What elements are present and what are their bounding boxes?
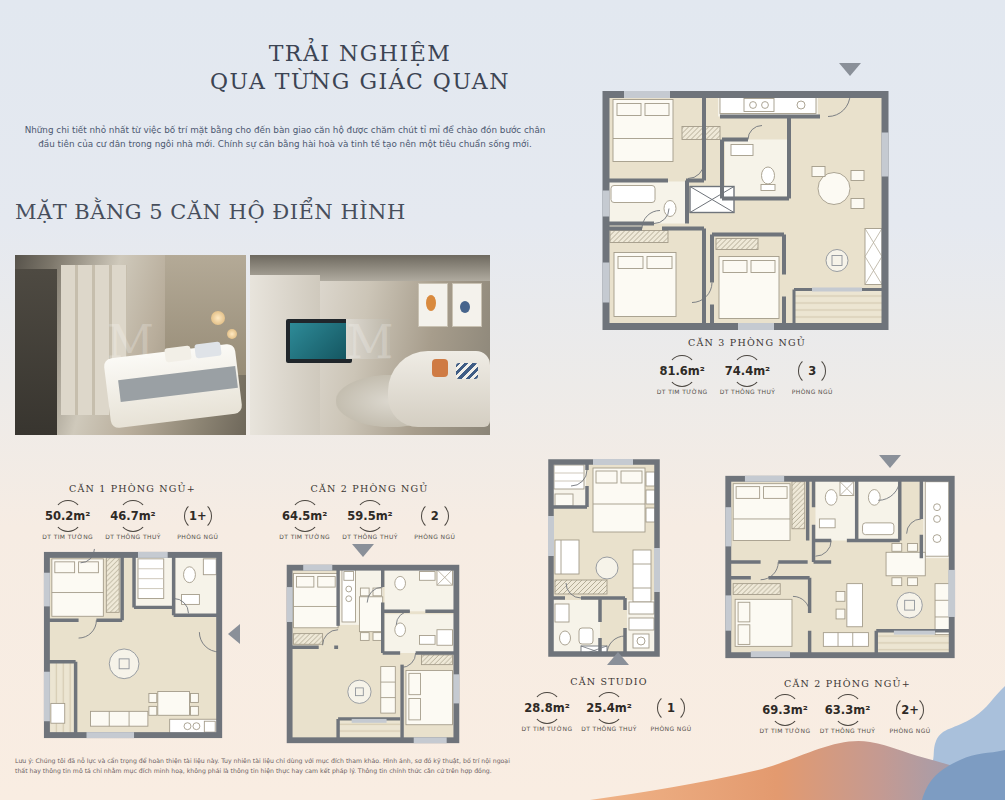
unit-name: CĂN 2 PHÒNG NGỦ+ — [760, 678, 935, 689]
stat-label: DT THÔNG THUỶ — [820, 727, 876, 734]
stat-label: DT TIM TƯỜNG — [760, 727, 811, 734]
stat-value: 25.4m² — [586, 693, 631, 723]
stat-gross-area: 64.5m² DT TIM TƯỜNG — [279, 501, 330, 540]
stat-net-area: 59.5m² DT THÔNG THUỶ — [342, 501, 398, 540]
stat-value: 69.3m² — [762, 695, 807, 725]
page-title: TRẢI NGHIỆM QUA TỪNG GIÁC QUAN — [205, 40, 515, 95]
orange-pillow-shape — [432, 359, 448, 377]
orientation-arrow-studio — [607, 652, 629, 665]
stat-value: 50.2m² — [45, 501, 90, 531]
page-title-line1: TRẢI NGHIỆM — [205, 40, 515, 68]
stat-value: 64.5m² — [282, 501, 327, 531]
stat-label: PHÒNG NGỦ — [650, 725, 691, 732]
floor-plan-3br — [598, 82, 893, 335]
orientation-arrow-1br-plus — [228, 624, 240, 644]
stat-bedrooms: 2 PHÒNG NGỦ — [410, 501, 460, 540]
stat-gross-area: 69.3m² DT TIM TƯỜNG — [760, 695, 810, 734]
unit-stats: 50.2m² DT TIM TƯỜNG 46.7m² DT THÔNG THUỶ… — [30, 501, 235, 540]
orientation-arrow-3br — [839, 63, 861, 76]
photo-watermark: M — [346, 315, 393, 369]
page-title-line2: QUA TỪNG GIÁC QUAN — [205, 68, 515, 96]
floor-plan-1br-plus — [38, 545, 236, 745]
stat-value: 74.4m² — [725, 356, 770, 386]
stat-net-area: 63.3m² DT THÔNG THUỶ — [822, 695, 873, 734]
unit-block-studio: CĂN STUDIO 28.8m² DT TIM TƯỜNG 25.4m² DT… — [524, 676, 694, 732]
stat-label: DT TIM TƯỜNG — [522, 725, 573, 732]
stat-label: PHÒNG NGỦ — [414, 533, 455, 540]
living-room-photo: M — [250, 255, 490, 435]
stat-label: PHÒNG NGỦ — [792, 388, 833, 395]
unit-stats: 81.6m² DT TIM TƯỜNG 74.4m² DT THÔNG THUỶ… — [637, 356, 857, 395]
stat-gross-area: 81.6m² DT TIM TƯỜNG — [657, 356, 708, 395]
stat-net-area: 25.4m² DT THÔNG THUỶ — [584, 693, 634, 732]
unit-name: CĂN 2 PHÒNG NGỦ — [272, 483, 467, 494]
pendant-lamp-shape — [227, 329, 237, 339]
intro-paragraph: Những chi tiết nhỏ nhất từ việc bố trí m… — [20, 123, 550, 152]
section-heading: MẶT BẰNG 5 CĂN HỘ ĐIỂN HÌNH — [15, 200, 406, 224]
stat-value: 59.5m² — [347, 501, 392, 531]
stat-label: PHÒNG NGỦ — [177, 533, 218, 540]
unit-name: CĂN 3 PHÒNG NGỦ — [637, 337, 857, 348]
stat-net-area: 74.4m² DT THÔNG THUỶ — [720, 356, 776, 395]
brochure-page: TRẢI NGHIỆM QUA TỪNG GIÁC QUAN Những chi… — [0, 0, 1005, 800]
bedroom-photo: M — [15, 255, 246, 435]
unit-block-2br-plus: CĂN 2 PHÒNG NGỦ+ 69.3m² DT TIM TƯỜNG 63.… — [760, 678, 935, 734]
pendant-lamp-shape — [211, 311, 225, 325]
striped-pillow-shape — [456, 363, 478, 379]
unit-stats: 28.8m² DT TIM TƯỜNG 25.4m² DT THÔNG THUỶ… — [524, 693, 694, 732]
unit-block-1br-plus: CĂN 1 PHÒNG NGỦ+ 50.2m² DT TIM TƯỜNG 46.… — [30, 483, 235, 540]
stat-bedrooms: 1 PHÒNG NGỦ — [646, 693, 696, 732]
stat-value: 28.8m² — [524, 693, 569, 723]
artwork-accent — [426, 295, 436, 311]
stat-bedrooms: 1+ PHÒNG NGỦ — [173, 501, 223, 540]
unit-stats: 64.5m² DT TIM TƯỜNG 59.5m² DT THÔNG THUỶ… — [272, 501, 467, 540]
tv-screen-shape — [290, 323, 348, 359]
stat-label: DT THÔNG THUỶ — [342, 533, 398, 540]
stat-value: 2+ — [893, 695, 927, 725]
stat-label: DT THÔNG THUỶ — [105, 533, 161, 540]
stat-gross-area: 28.8m² DT TIM TƯỜNG — [522, 693, 572, 732]
stat-value: 1+ — [181, 501, 215, 531]
stat-label: DT TIM TƯỜNG — [279, 533, 330, 540]
orientation-arrow-2br-plus — [879, 455, 901, 468]
floor-plan-2br-plus — [720, 468, 960, 664]
unit-name: CĂN 1 PHÒNG NGỦ+ — [30, 483, 235, 494]
stat-value: 46.7m² — [110, 501, 155, 531]
stat-label: PHÒNG NGỦ — [889, 727, 930, 734]
stat-label: DT TIM TƯỜNG — [42, 533, 93, 540]
stat-label: DT THÔNG THUỶ — [720, 388, 776, 395]
stat-gross-area: 50.2m² DT TIM TƯỜNG — [42, 501, 93, 540]
artwork-accent — [460, 301, 470, 313]
unit-stats: 69.3m² DT TIM TƯỜNG 63.3m² DT THÔNG THUỶ… — [760, 695, 935, 734]
disclaimer-note: Lưu ý: Chúng tôi đã nỗ lực và cẩn trọng … — [15, 756, 520, 776]
floor-plan-studio — [545, 452, 663, 664]
unit-name: CĂN STUDIO — [524, 676, 694, 687]
stat-value: 81.6m² — [660, 356, 705, 386]
unit-block-2br: CĂN 2 PHÒNG NGỦ 64.5m² DT TIM TƯỜNG 59.5… — [272, 483, 467, 540]
photo-watermark: M — [107, 315, 154, 369]
floor-plan-2br — [281, 558, 465, 748]
stat-value: 63.3m² — [825, 695, 870, 725]
stat-value: 1 — [654, 693, 688, 723]
unit-block-3br: CĂN 3 PHÒNG NGỦ 81.6m² DT TIM TƯỜNG 74.4… — [637, 337, 857, 395]
stat-label: DT THÔNG THUỶ — [581, 725, 637, 732]
doorway-shape — [15, 269, 57, 435]
stat-net-area: 46.7m² DT THÔNG THUỶ — [105, 501, 161, 540]
orientation-arrow-2br — [352, 544, 374, 557]
stat-value: 2 — [418, 501, 452, 531]
stat-bedrooms: 3 PHÒNG NGỦ — [787, 356, 837, 395]
stat-label: DT TIM TƯỜNG — [657, 388, 708, 395]
stat-bedrooms: 2+ PHÒNG NGỦ — [885, 695, 935, 734]
stat-value: 3 — [795, 356, 829, 386]
